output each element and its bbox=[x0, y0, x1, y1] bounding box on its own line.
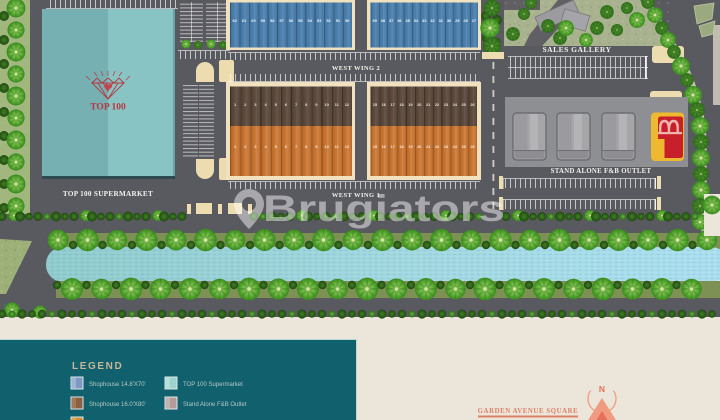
svg-text:Brugiators: Brugiators bbox=[263, 188, 505, 229]
svg-text:Shophouse 14.8'X70': Shophouse 14.8'X70' bbox=[89, 382, 146, 388]
svg-text:31: 31 bbox=[439, 18, 444, 23]
svg-text:54: 54 bbox=[308, 18, 313, 23]
svg-text:24: 24 bbox=[453, 102, 458, 107]
svg-text:56: 56 bbox=[289, 18, 294, 23]
svg-text:32: 32 bbox=[430, 18, 435, 23]
svg-text:WEST WING 2: WEST WING 2 bbox=[332, 65, 380, 72]
svg-text:37: 37 bbox=[389, 18, 394, 23]
svg-text:LEGEND: LEGEND bbox=[72, 361, 123, 372]
svg-text:58: 58 bbox=[270, 18, 275, 23]
svg-text:53: 53 bbox=[317, 18, 322, 23]
svg-text:16: 16 bbox=[382, 102, 387, 107]
svg-text:38: 38 bbox=[381, 18, 386, 23]
svg-text:15: 15 bbox=[373, 144, 378, 149]
svg-text:12: 12 bbox=[345, 102, 350, 107]
svg-text:52: 52 bbox=[326, 18, 331, 23]
svg-text:30: 30 bbox=[447, 18, 452, 23]
svg-text:39: 39 bbox=[372, 18, 377, 23]
svg-text:12: 12 bbox=[345, 144, 350, 149]
svg-text:10: 10 bbox=[324, 144, 329, 149]
svg-text:21: 21 bbox=[426, 144, 431, 149]
svg-text:22: 22 bbox=[435, 144, 440, 149]
svg-text:20: 20 bbox=[417, 102, 422, 107]
svg-text:10: 10 bbox=[324, 102, 329, 107]
svg-text:26: 26 bbox=[470, 144, 475, 149]
svg-text:26: 26 bbox=[470, 102, 475, 107]
svg-text:34: 34 bbox=[414, 18, 419, 23]
svg-text:20: 20 bbox=[417, 144, 422, 149]
svg-text:17: 17 bbox=[390, 144, 395, 149]
svg-text:24: 24 bbox=[453, 144, 458, 149]
svg-text:23: 23 bbox=[444, 144, 449, 149]
svg-text:50: 50 bbox=[345, 18, 350, 23]
svg-text:15: 15 bbox=[373, 102, 378, 107]
svg-text:19: 19 bbox=[408, 102, 413, 107]
svg-text:25: 25 bbox=[461, 144, 466, 149]
svg-text:35: 35 bbox=[405, 18, 410, 23]
svg-text:19: 19 bbox=[408, 144, 413, 149]
svg-text:59: 59 bbox=[261, 18, 266, 23]
svg-text:17: 17 bbox=[390, 102, 395, 107]
svg-text:GARDEN AVENUE SQUARE: GARDEN AVENUE SQUARE bbox=[478, 408, 579, 415]
svg-text:21: 21 bbox=[426, 102, 431, 107]
svg-text:TOP 100 Supermarket: TOP 100 Supermarket bbox=[183, 382, 243, 388]
svg-text:STAND ALONE F&B OUTLET: STAND ALONE F&B OUTLET bbox=[551, 168, 652, 175]
svg-text:23: 23 bbox=[444, 102, 449, 107]
svg-text:36: 36 bbox=[397, 18, 402, 23]
svg-text:18: 18 bbox=[399, 102, 404, 107]
svg-text:51: 51 bbox=[336, 18, 341, 23]
svg-text:18: 18 bbox=[399, 144, 404, 149]
svg-text:55: 55 bbox=[298, 18, 303, 23]
svg-text:28: 28 bbox=[463, 18, 468, 23]
svg-text:N: N bbox=[599, 384, 605, 394]
svg-text:62: 62 bbox=[232, 18, 237, 23]
svg-text:22: 22 bbox=[435, 102, 440, 107]
svg-text:33: 33 bbox=[422, 18, 427, 23]
svg-text:16: 16 bbox=[382, 144, 387, 149]
svg-text:TOP 100: TOP 100 bbox=[90, 103, 126, 113]
svg-text:Shophouse 16.0'X80': Shophouse 16.0'X80' bbox=[89, 402, 146, 408]
svg-text:Stand Alone F&B Outlet: Stand Alone F&B Outlet bbox=[183, 402, 247, 408]
svg-text:61: 61 bbox=[242, 18, 247, 23]
svg-text:57: 57 bbox=[279, 18, 284, 23]
svg-text:25: 25 bbox=[461, 102, 466, 107]
svg-text:SALES GALLERY: SALES GALLERY bbox=[543, 45, 612, 54]
svg-text:27: 27 bbox=[472, 18, 477, 23]
svg-text:TOP 100 SUPERMARKET: TOP 100 SUPERMARKET bbox=[63, 190, 153, 198]
svg-text:60: 60 bbox=[251, 18, 256, 23]
svg-text:29: 29 bbox=[455, 18, 460, 23]
